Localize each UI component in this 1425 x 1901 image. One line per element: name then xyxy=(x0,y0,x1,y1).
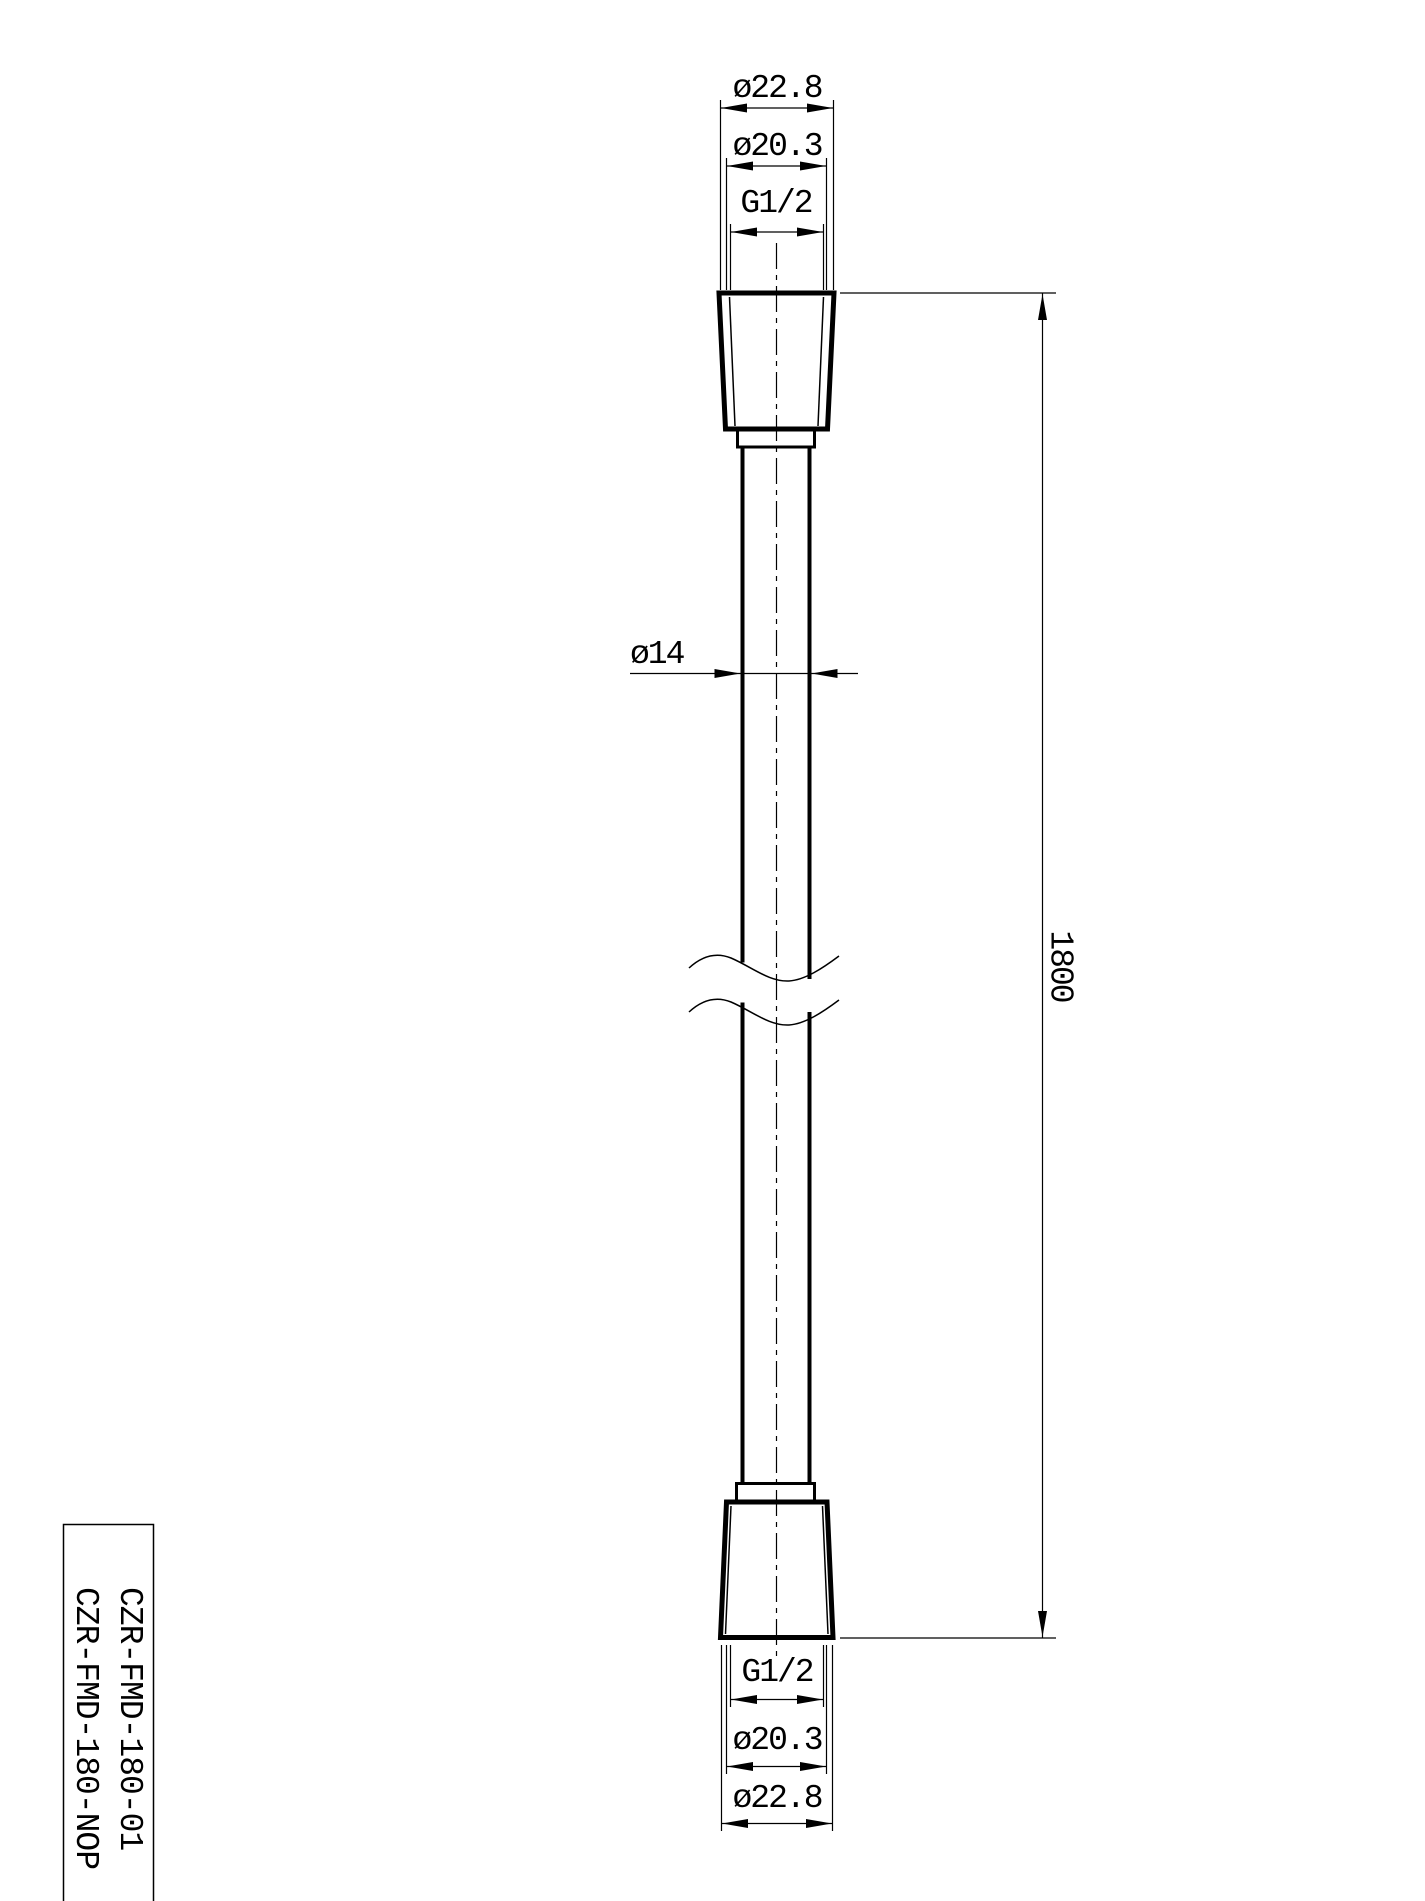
hose-length-label: 1800 xyxy=(1044,930,1077,1001)
dimension-arrowheads xyxy=(715,104,1048,1829)
bottom-outer-diameter-label: ø22.8 xyxy=(732,1782,821,1815)
title-block-part-numbers: CZR-FMD-180-01 CZR-FMD-180-NOP xyxy=(63,1587,151,1869)
break-symbol xyxy=(689,955,839,1025)
part-number-primary: CZR-FMD-180-01 xyxy=(107,1587,151,1869)
bottom-thread-size-label: G1/2 xyxy=(741,1656,812,1689)
top-thread-size-label: G1/2 xyxy=(740,187,811,220)
top-outer-diameter-label: ø22.8 xyxy=(732,72,821,105)
part-number-secondary: CZR-FMD-180-NOP xyxy=(63,1587,107,1869)
drawing-canvas: ø22.8 ø20.3 G1/2 ø14 1800 G1/2 ø20.3 ø22… xyxy=(0,0,1425,1901)
top-thread-outer-diameter-label: ø20.3 xyxy=(732,130,821,163)
hose-diameter-label: ø14 xyxy=(630,638,683,671)
bottom-thread-outer-diameter-label: ø20.3 xyxy=(732,1724,821,1757)
hose-technical-drawing xyxy=(0,0,1425,1901)
length-dimension-lines xyxy=(840,293,1056,1638)
